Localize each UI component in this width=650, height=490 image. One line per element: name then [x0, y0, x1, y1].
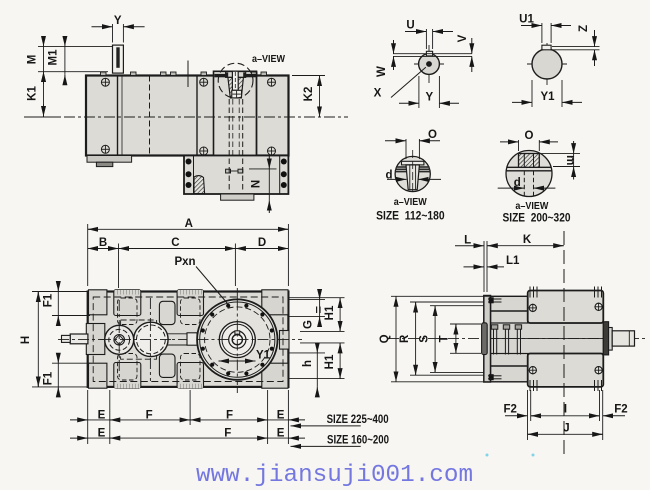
- svg-text:X: X: [374, 88, 382, 100]
- svg-text:V: V: [457, 34, 469, 42]
- svg-text:A: A: [185, 218, 193, 230]
- svg-text:F: F: [224, 428, 231, 440]
- svg-text:S: S: [419, 335, 431, 343]
- svg-text:d: d: [385, 170, 392, 182]
- svg-text:K1: K1: [27, 86, 39, 101]
- svg-text:SIZE 160~200: SIZE 160~200: [327, 435, 389, 447]
- svg-text:C: C: [171, 237, 179, 249]
- svg-text:L: L: [464, 235, 471, 247]
- svg-text:Q: Q: [379, 334, 391, 343]
- svg-text:F: F: [146, 409, 153, 421]
- svg-text:a–VIEW: a–VIEW: [394, 196, 427, 208]
- svg-text:D: D: [258, 237, 266, 249]
- svg-text:G: G: [303, 320, 315, 329]
- svg-text:F1: F1: [43, 293, 55, 307]
- svg-text:E: E: [277, 409, 285, 421]
- svg-text:K: K: [523, 234, 532, 246]
- svg-text:W: W: [376, 66, 388, 77]
- svg-text:U: U: [406, 20, 414, 32]
- svg-text:L1: L1: [506, 255, 520, 267]
- svg-text:Y1: Y1: [540, 91, 555, 103]
- svg-text:E: E: [98, 409, 106, 421]
- svg-text:F: F: [226, 409, 233, 421]
- svg-text:m: m: [564, 155, 576, 165]
- svg-text:Pxn: Pxn: [174, 256, 195, 268]
- svg-text:d: d: [514, 177, 521, 189]
- svg-text:a–VIEW: a–VIEW: [252, 53, 285, 65]
- svg-text:SIZE 112~180: SIZE 112~180: [376, 211, 445, 223]
- svg-text:J: J: [563, 423, 569, 435]
- svg-text:F2: F2: [614, 404, 627, 416]
- svg-text:R: R: [399, 334, 411, 343]
- svg-text:E: E: [98, 428, 106, 440]
- svg-text:F2: F2: [503, 404, 516, 416]
- svg-text:h: h: [302, 360, 314, 367]
- svg-text:Z: Z: [578, 25, 590, 32]
- svg-text:O: O: [428, 129, 437, 141]
- svg-text:E: E: [277, 428, 285, 440]
- svg-text:Y: Y: [114, 15, 122, 27]
- svg-text:F1: F1: [43, 371, 55, 385]
- svg-text:N: N: [251, 180, 263, 188]
- svg-text:SIZE 200~320: SIZE 200~320: [503, 213, 571, 225]
- svg-text:K2: K2: [303, 87, 315, 102]
- svg-text:M1: M1: [48, 49, 60, 66]
- svg-text:H1: H1: [324, 354, 336, 369]
- svg-text:U1: U1: [519, 14, 534, 26]
- svg-text:Y: Y: [425, 92, 433, 104]
- svg-text:www.jiansuji001.com: www.jiansuji001.com: [196, 462, 473, 489]
- svg-text:O: O: [525, 130, 534, 142]
- svg-text:Y1: Y1: [256, 350, 271, 362]
- svg-text:H: H: [20, 336, 32, 344]
- svg-text:T: T: [439, 335, 451, 342]
- svg-text:SIZE 225~400: SIZE 225~400: [327, 414, 389, 426]
- svg-text:B: B: [99, 237, 107, 249]
- svg-text:M: M: [27, 55, 39, 65]
- svg-text:I: I: [564, 404, 567, 416]
- svg-text:H1: H1: [324, 305, 336, 320]
- svg-text:a–VIEW: a–VIEW: [515, 200, 548, 212]
